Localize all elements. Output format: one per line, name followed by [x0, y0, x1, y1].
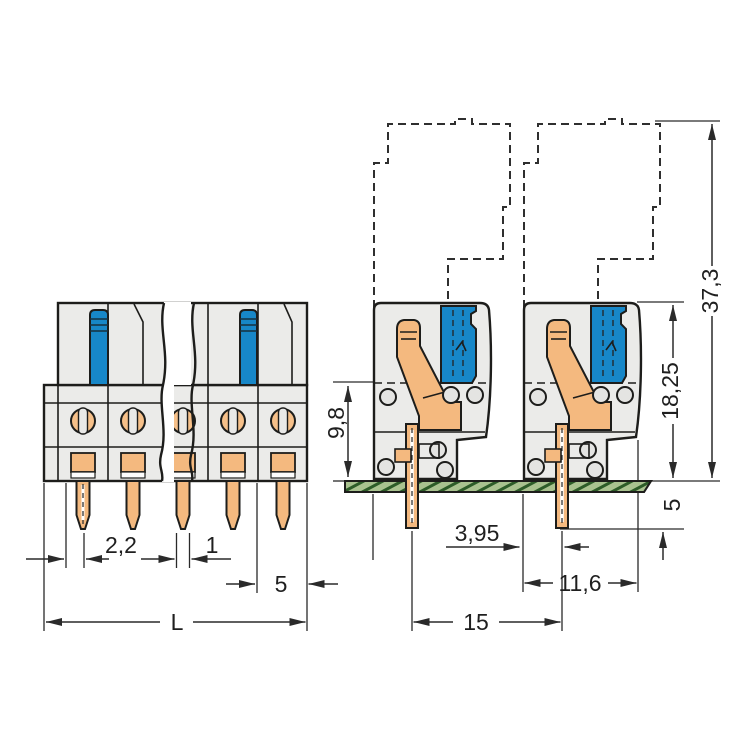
dim-label-overall-height: 37,3	[697, 269, 723, 314]
connector-side-1	[374, 119, 510, 528]
dim-label-total-length: L	[171, 609, 184, 635]
dimension-clamp-height: 9,8	[323, 386, 349, 477]
connector-side-2	[524, 119, 660, 528]
dim-label-body-depth: 11,6	[558, 570, 601, 596]
dimension-pitch: 5	[226, 571, 338, 597]
dimension-edge-to-pin-front: 2,2	[26, 532, 137, 559]
dimension-overall-height: 37,3	[697, 124, 723, 478]
dim-label-min-spacing: 15	[463, 609, 489, 635]
front-view	[44, 302, 307, 529]
dimension-min-spacing: 15	[414, 609, 561, 635]
technical-drawing-page: 2,2 1 5 L 37,3 18,25	[0, 0, 750, 750]
dim-label-clamp-height: 9,8	[323, 407, 349, 439]
dim-label-pitch: 5	[275, 571, 288, 597]
dim-label-pin-below-pcb: 5	[659, 499, 685, 512]
dimension-height-above-pcb: 18,25	[657, 305, 683, 478]
dim-label-height-above-pcb: 18,25	[657, 362, 683, 420]
pcb	[345, 481, 651, 492]
technical-drawing: 2,2 1 5 L 37,3 18,25	[0, 0, 750, 750]
dim-label-pin-width: 1	[206, 532, 219, 558]
dimension-body-depth: 11,6	[525, 570, 637, 596]
dimension-pin-width: 1	[141, 532, 231, 559]
dim-label-edge-to-pin: 2,2	[105, 532, 137, 558]
dimension-total-length: L	[46, 609, 306, 635]
dim-label-edge-to-pin-side: 3,95	[455, 520, 500, 546]
